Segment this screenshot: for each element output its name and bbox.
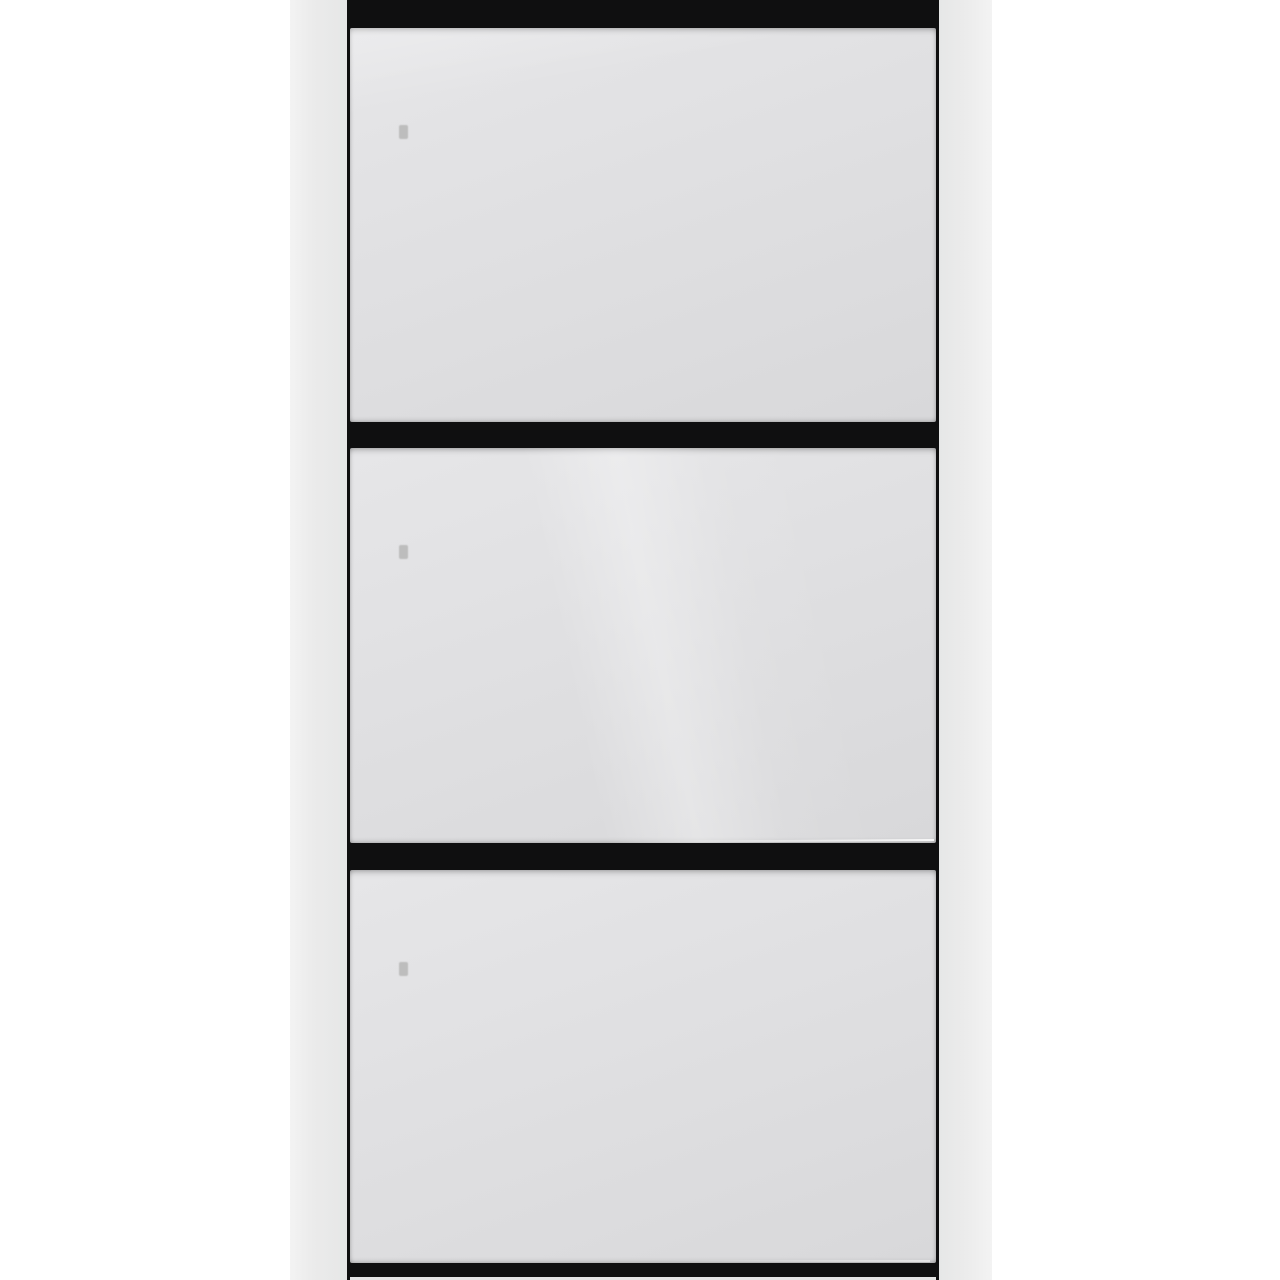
bottom-trim-band <box>347 1263 939 1277</box>
shoe-cabinet <box>290 0 992 1280</box>
cabinet-left-side-panel <box>290 0 347 1280</box>
cabinet-right-side-panel <box>939 0 992 1280</box>
product-photo <box>0 0 1280 1280</box>
hinge-pin-mark-top <box>399 125 408 139</box>
top-trim-band <box>347 0 939 25</box>
hinge-pin-mark-middle <box>399 545 408 559</box>
cabinet-inner-frame <box>347 0 939 1280</box>
flip-drawer-middle <box>350 448 936 843</box>
flip-drawer-top <box>350 28 936 422</box>
divider-band-2 <box>347 843 939 870</box>
hinge-pin-mark-bottom <box>399 962 408 976</box>
flip-drawer-bottom <box>350 870 936 1263</box>
divider-band-1 <box>347 422 939 448</box>
